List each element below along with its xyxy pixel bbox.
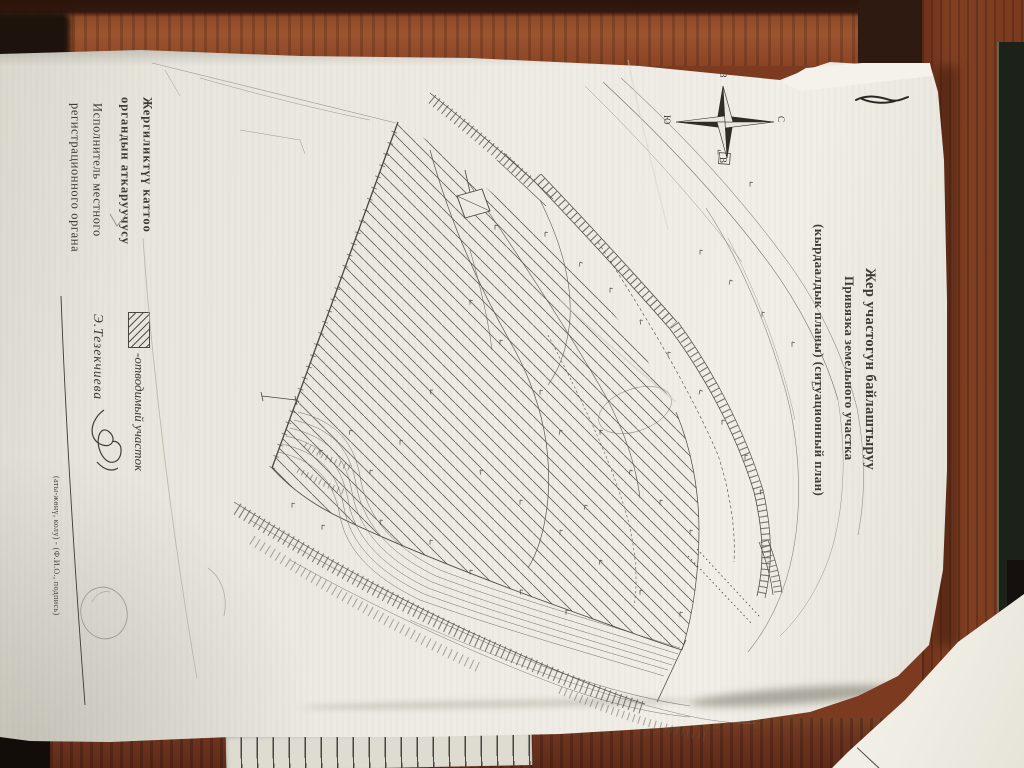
signature-mark — [92, 410, 121, 470]
pencil-check-mark — [110, 214, 126, 226]
survey-baseline-mark — [261, 392, 297, 405]
ink-scribble — [856, 97, 908, 103]
compass-label-north: С — [776, 116, 786, 122]
site-plan-map: С Ю З В — [0, 0, 1024, 768]
compass-label-west: З — [718, 73, 728, 78]
compass-label-east: В — [718, 157, 728, 163]
signature-line — [61, 296, 85, 705]
faint-boundary-lines — [152, 63, 396, 154]
pencil-circle-artifact — [75, 582, 133, 644]
compass-rose-icon — [676, 86, 774, 164]
photo-of-document: Бул мамлеучастогунунрайон Жергиликтүү ка… — [0, 0, 1024, 768]
compass-label-south: Ю — [662, 115, 672, 124]
